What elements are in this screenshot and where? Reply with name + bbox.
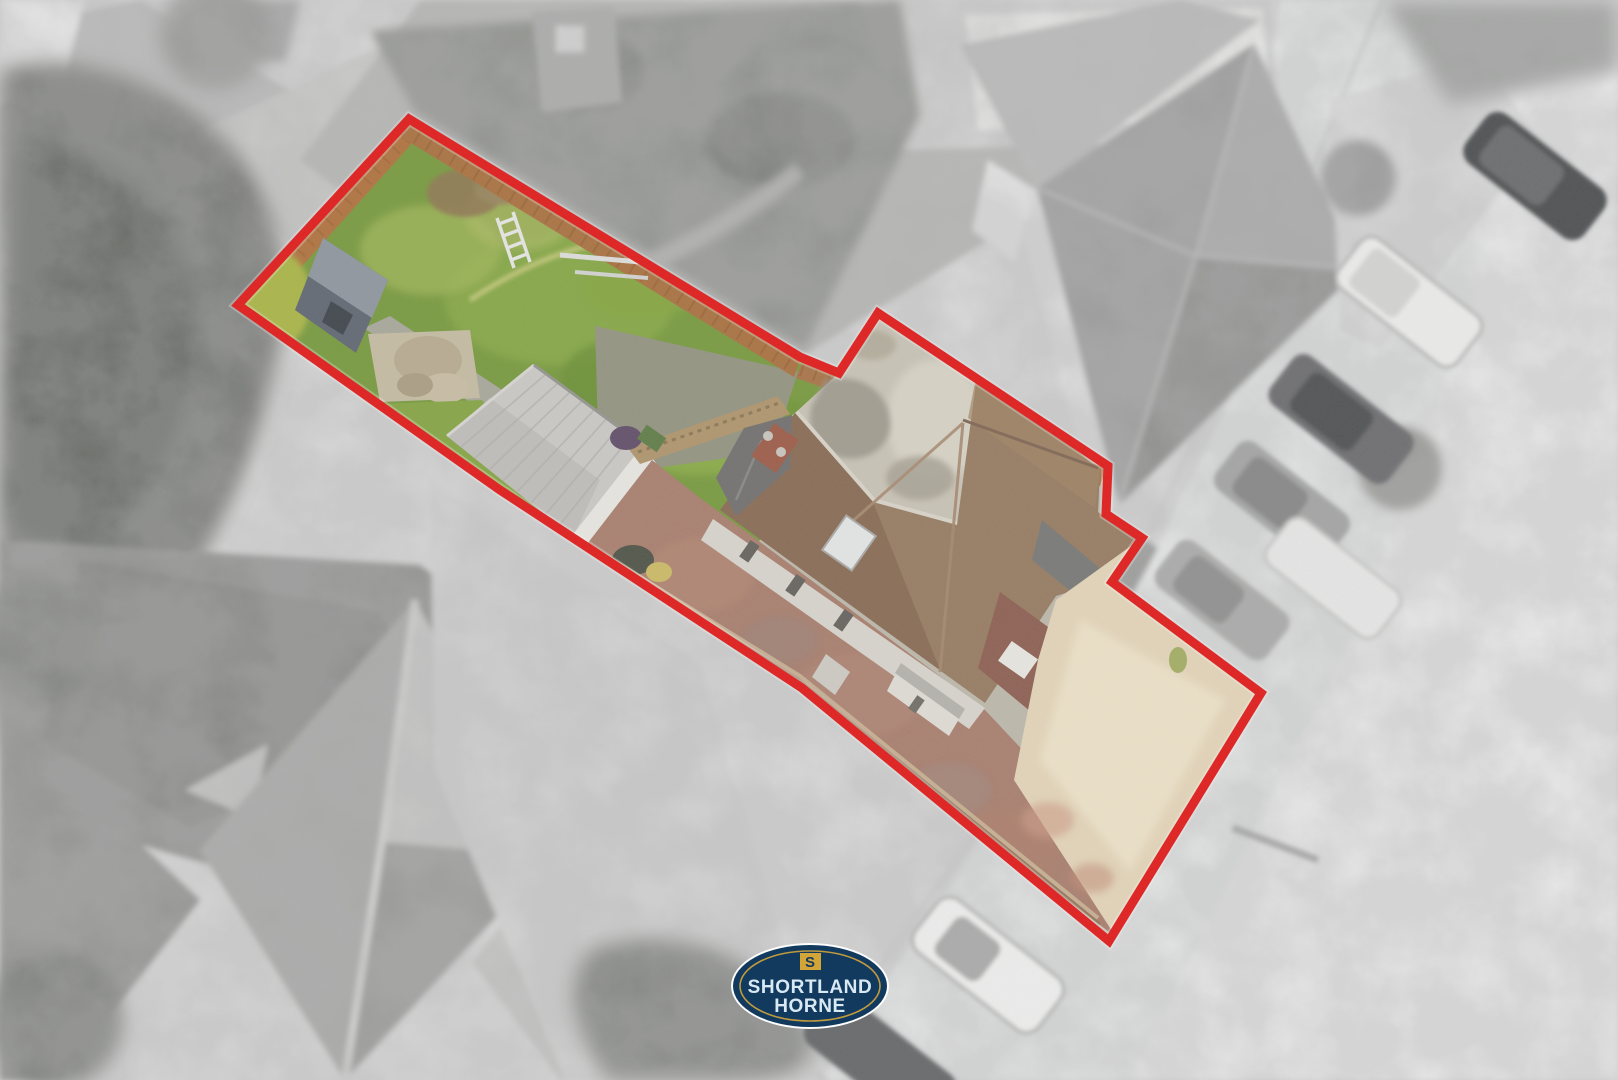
svg-text:S: S [805,954,815,971]
svg-text:HORNE: HORNE [774,996,846,1017]
svg-text:SHORTLAND: SHORTLAND [748,977,873,998]
